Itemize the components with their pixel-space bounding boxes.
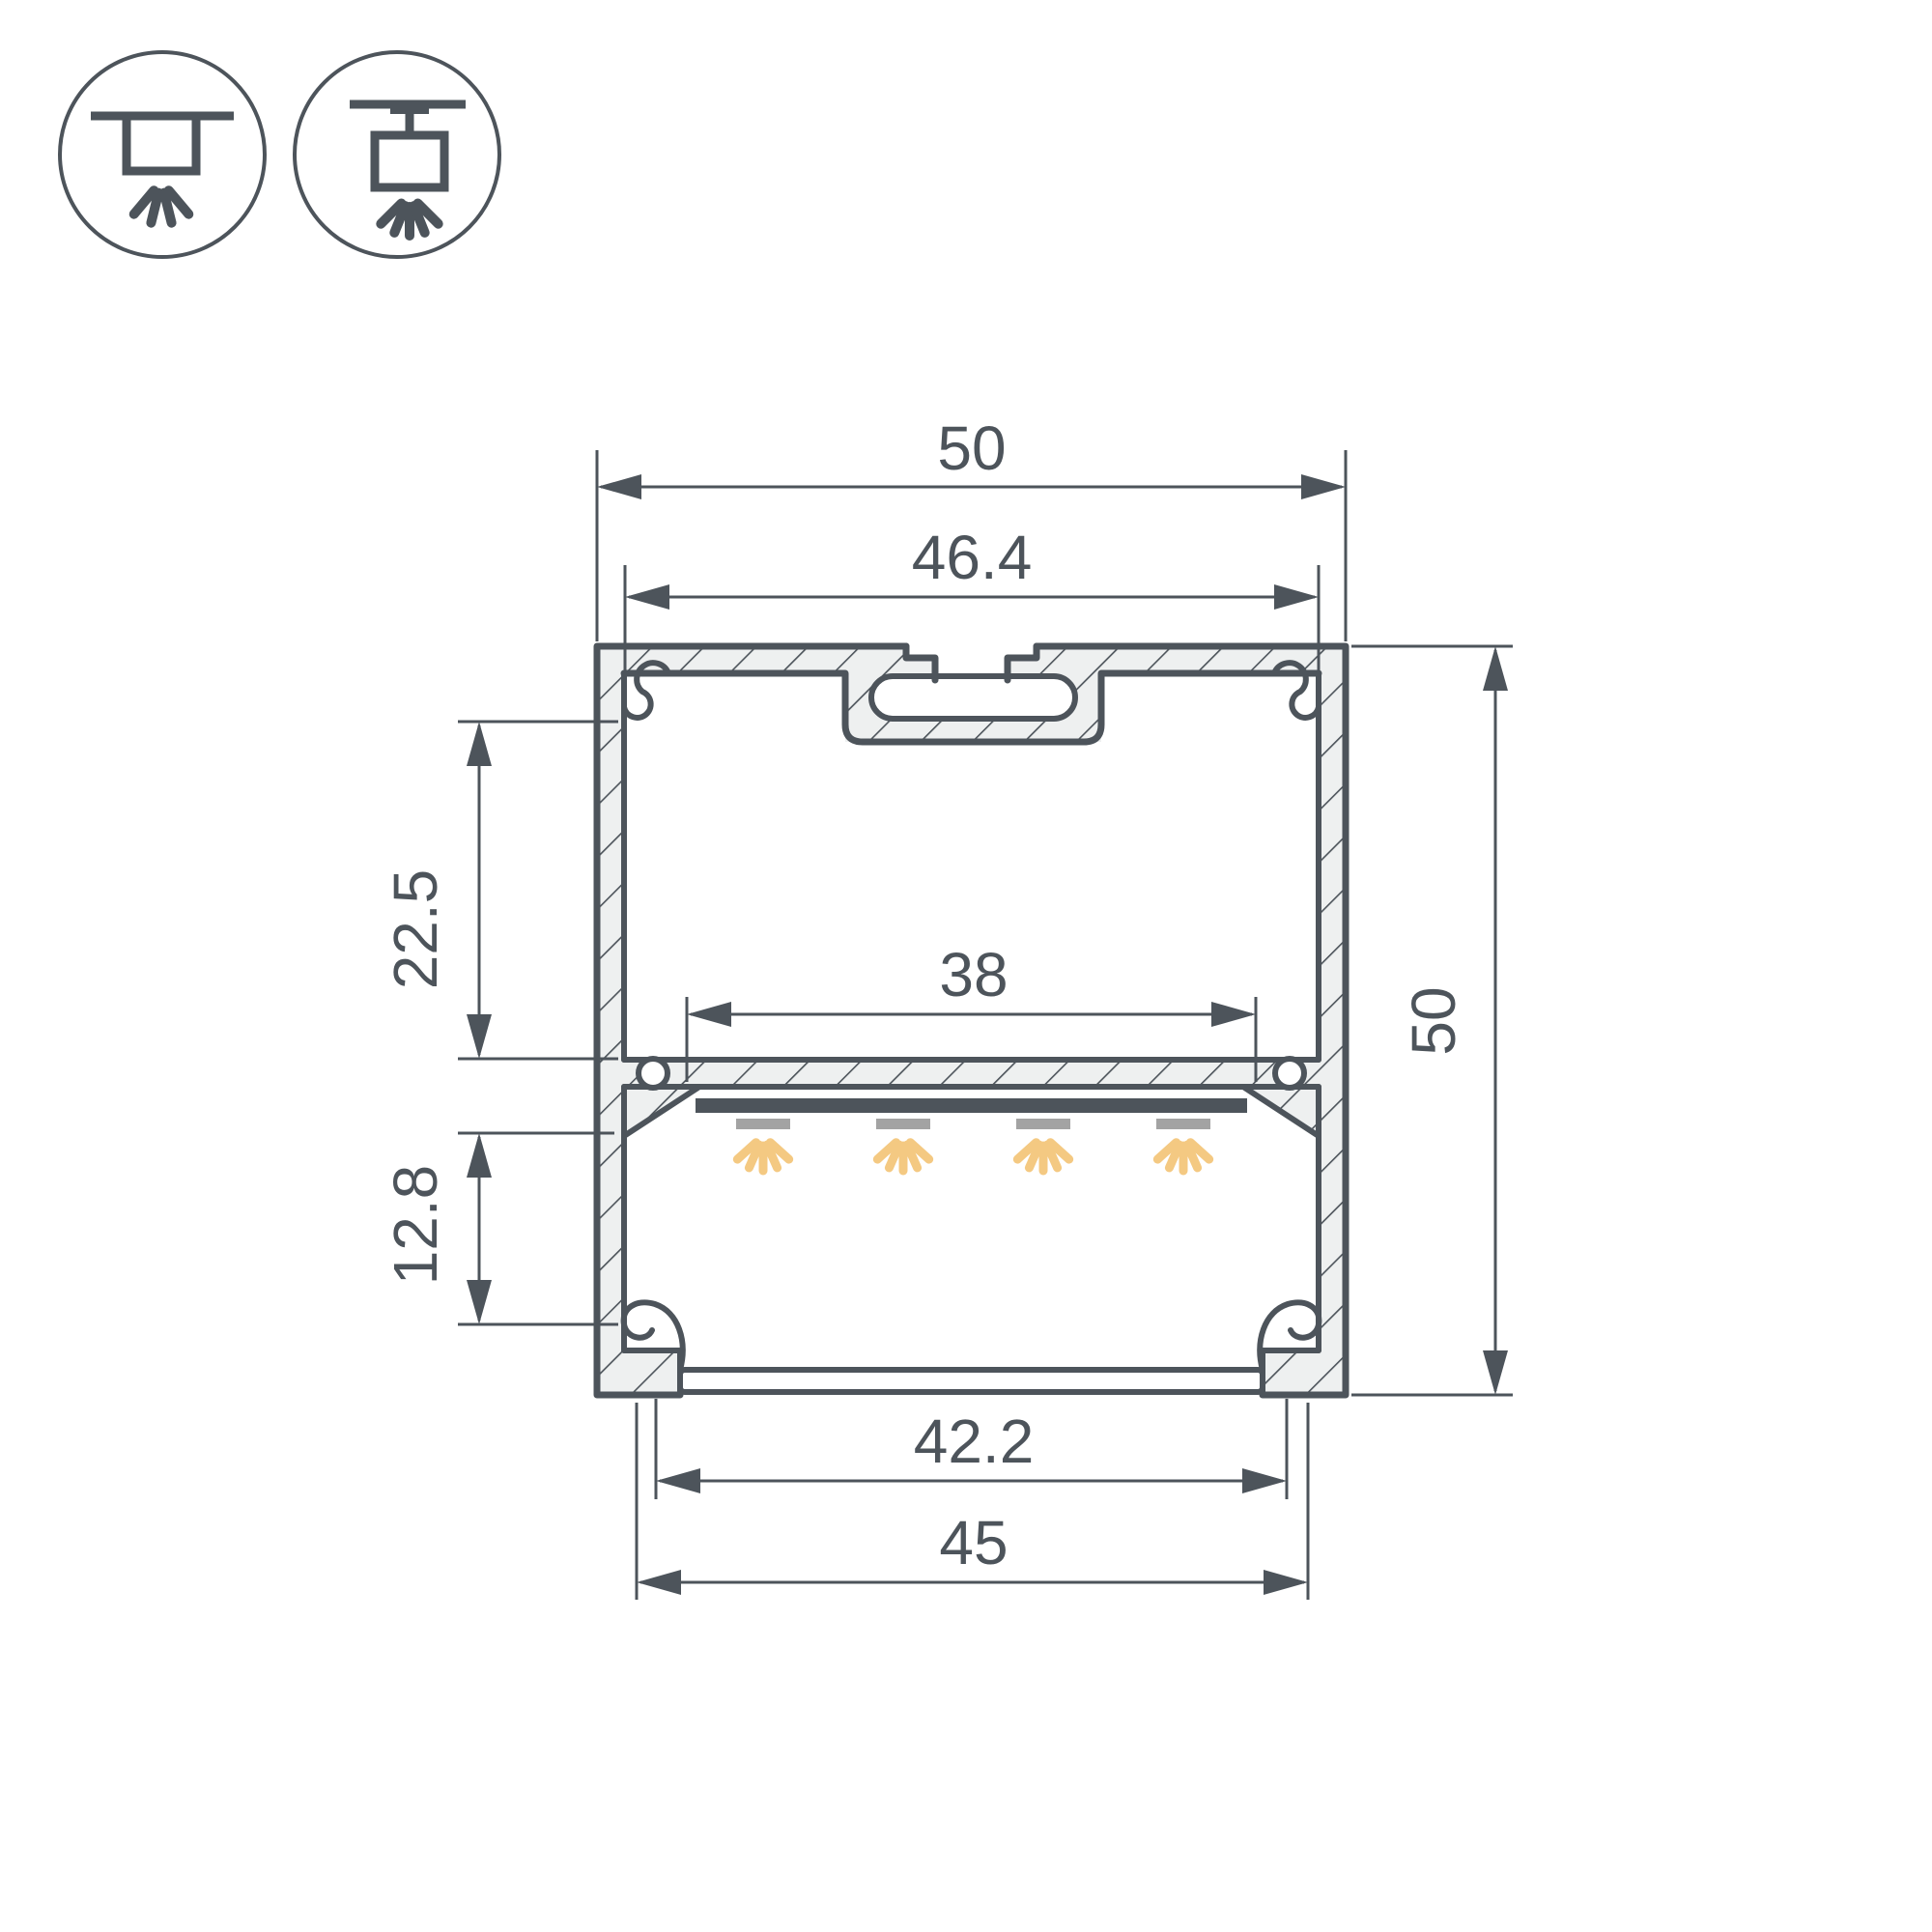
left-foot: [624, 1350, 680, 1395]
left-wall: [597, 646, 624, 1395]
light-rays-icon: [134, 190, 189, 223]
suspension-slot-cavity: [871, 676, 1075, 719]
dimension-label: 38: [939, 940, 1008, 1009]
dimension-label: 42.2: [914, 1406, 1035, 1476]
profile-drawing: 50 46.4 38 22.5: [0, 0, 1932, 1932]
led-module: [1016, 1119, 1070, 1129]
screw-boss-shelf-left: [639, 1059, 668, 1088]
icon-border-circle: [60, 52, 265, 257]
dimension-upper-section-height: 22.5: [381, 722, 618, 1059]
diffuser-cover: [680, 1370, 1263, 1392]
top-wall-left: [597, 646, 935, 673]
dimension-diffuser-width: 42.2: [656, 1399, 1287, 1499]
surface-mount-icon: [60, 52, 265, 257]
drawing-canvas: 50 46.4 38 22.5: [0, 0, 1932, 1932]
dimension-label: 46.4: [912, 523, 1033, 592]
dimension-label: 50: [937, 413, 1006, 483]
right-foot: [1263, 1350, 1319, 1395]
light-rays-icon: [381, 204, 438, 237]
led-module: [1156, 1119, 1210, 1129]
led-strip: [696, 1098, 1247, 1171]
mount-type-icons: [60, 52, 499, 257]
led-modules: [736, 1119, 1210, 1129]
led-light-rays: [737, 1143, 1208, 1171]
dimension-label: 12.8: [381, 1165, 450, 1286]
dimension-label: 22.5: [381, 869, 450, 990]
top-wall-right: [1008, 646, 1346, 673]
dimension-lower-section-height: 12.8: [381, 1133, 618, 1324]
dimension-outer-height: 50: [1351, 646, 1513, 1395]
led-module: [876, 1119, 930, 1129]
pendant-mount-icon: [295, 52, 499, 257]
dimension-label: 45: [939, 1508, 1008, 1577]
led-pcb-bar: [696, 1098, 1247, 1113]
led-shelf: [624, 1060, 1319, 1087]
screw-boss-shelf-right: [1275, 1059, 1304, 1088]
profile-box: [375, 135, 444, 187]
led-module: [736, 1119, 790, 1129]
dimension-label: 50: [1399, 986, 1468, 1055]
right-wall: [1319, 646, 1346, 1395]
profile-box: [127, 118, 196, 171]
